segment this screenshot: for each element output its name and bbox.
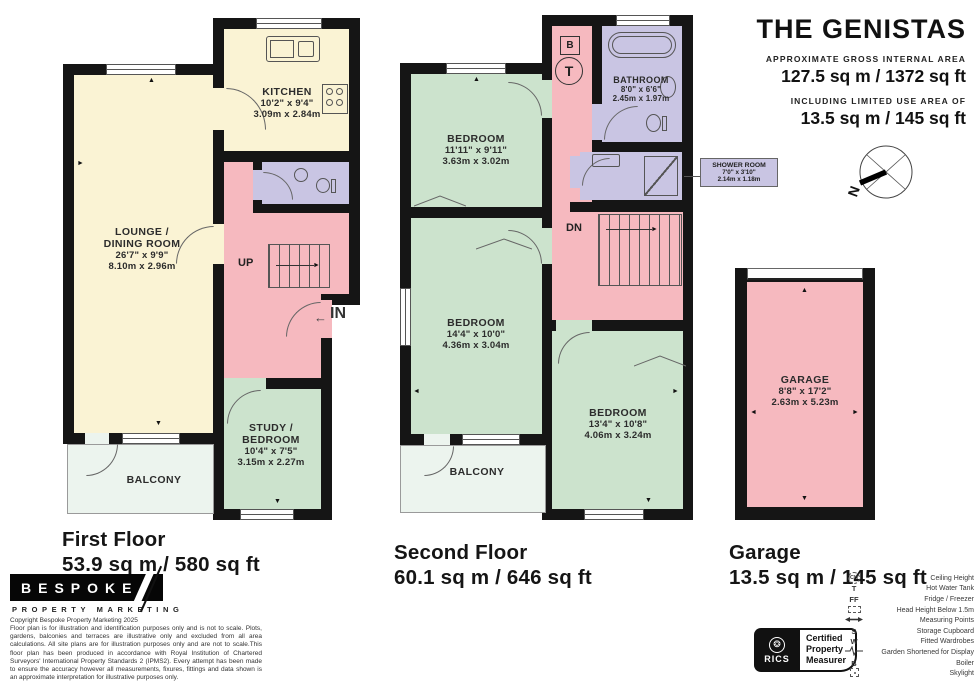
window xyxy=(616,15,670,26)
wardrobe-icon xyxy=(476,238,532,250)
rics-logo: ❂ RICS xyxy=(754,628,800,672)
measure-arrow-icon: ◄ xyxy=(750,409,757,416)
hob-ring xyxy=(326,99,333,106)
balcony-second xyxy=(400,445,546,513)
measure-arrow-icon: ► xyxy=(672,388,679,395)
stairs-down-label: DN xyxy=(566,222,582,234)
boiler-marker: B xyxy=(560,36,580,55)
door-opening xyxy=(556,320,592,331)
second-floor-title: Second Floor 60.1 sq m / 646 sq ft xyxy=(394,540,592,590)
measure-arrow-icon: ◄ xyxy=(413,388,420,395)
measure-arrow-icon: ► xyxy=(852,409,859,416)
window xyxy=(106,64,176,75)
measure-arrow-icon: ▼ xyxy=(155,420,162,427)
legend-row: S Storage Cupboard xyxy=(842,626,974,637)
fridge-freezer-icon: FF xyxy=(842,595,866,604)
room-label-balcony-second: BALCONY xyxy=(450,466,505,478)
door-opening xyxy=(424,434,450,445)
arrow-right-icon: ► xyxy=(313,262,320,269)
legend-row: Head Height Below 1.5m xyxy=(842,605,974,616)
garage-door xyxy=(747,268,863,280)
room-label-study: STUDY / BEDROOM 10'4" x 7'5" 3.15m x 2.2… xyxy=(237,422,304,468)
toilet-tank xyxy=(662,116,667,131)
window xyxy=(400,288,411,346)
measure-arrow-icon: ▼ xyxy=(801,495,808,502)
shower-tag-line xyxy=(684,176,700,177)
door-opening xyxy=(224,378,266,389)
door-opening xyxy=(542,228,552,264)
measure-arrow-icon: ▼ xyxy=(645,497,652,504)
head-height-icon xyxy=(842,606,866,615)
measure-arrow-icon: ▲ xyxy=(473,76,480,83)
sink-bowl xyxy=(270,40,294,58)
wardrobe-icon xyxy=(634,355,686,367)
disclaimer-text: Floor plan is for illustration and ident… xyxy=(10,625,262,682)
legend-row: CH Ceiling Height xyxy=(842,573,974,584)
basin-icon xyxy=(294,168,308,182)
page-title: THE GENISTAS xyxy=(756,14,966,45)
copyright-line: Copyright Bespoke Property Marketing 202… xyxy=(10,617,262,624)
legend-row: B Boiler xyxy=(842,658,974,669)
window xyxy=(584,509,644,520)
window xyxy=(462,434,520,445)
wardrobe-icon xyxy=(414,195,466,207)
rics-lion-icon: ❂ xyxy=(769,637,785,653)
room-corridor xyxy=(552,152,570,212)
stairs-arrow xyxy=(606,229,652,230)
toilet-icon xyxy=(646,114,661,132)
room-label-lounge: LOUNGE / DINING ROOM 26'7" x 9'9" 8.10m … xyxy=(104,226,181,272)
rics-brand: RICS xyxy=(764,654,790,664)
measure-arrow-icon: ► xyxy=(77,160,84,167)
legend: CH Ceiling Height T Hot Water Tank FF Fr… xyxy=(842,573,974,679)
fitted-wardrobes-icon: W xyxy=(842,637,866,646)
window xyxy=(122,433,180,444)
door-opening xyxy=(253,170,262,200)
door-opening xyxy=(213,224,224,264)
room-label-garage: GARAGE 8'8" x 17'2" 2.63m x 5.23m xyxy=(771,374,838,408)
sink-bowl xyxy=(298,41,314,57)
legend-row: T Hot Water Tank xyxy=(842,584,974,595)
measure-arrow-icon: ▲ xyxy=(148,77,155,84)
compass-north-label: N xyxy=(846,184,863,199)
bath-inner xyxy=(612,36,672,54)
stairs-down xyxy=(598,214,682,286)
storage-cupboard-icon: S xyxy=(842,627,866,636)
boiler-icon: B xyxy=(842,659,866,668)
entrance-arrow-icon: ← xyxy=(314,311,327,324)
door-opening xyxy=(213,88,224,130)
stairs-up xyxy=(268,244,330,288)
hob-ring xyxy=(326,88,333,95)
gross-area-label: APPROXIMATE GROSS INTERNAL AREA xyxy=(756,54,966,64)
room-label-bedroom2: BEDROOM 14'4" x 10'0" 4.36m x 3.04m xyxy=(442,317,509,351)
toilet-icon xyxy=(316,178,330,193)
toilet-tank xyxy=(331,179,336,193)
room-label-bedroom1: BEDROOM 11'11" x 9'11" 3.63m x 3.02m xyxy=(442,133,509,167)
room-label-bathroom: BATHROOM 8'0" x 6'6" 2.45m x 1.97m xyxy=(613,75,670,103)
arrow-right-icon: ► xyxy=(651,226,658,233)
floorplan-page: ► KITCHEN 10'2" x 9'4" 3.09m x 2.84m LOU… xyxy=(0,0,980,692)
legend-row: Garden Shortened for Display xyxy=(842,647,974,658)
sink-icon xyxy=(266,36,320,62)
hob-ring xyxy=(336,88,343,95)
door-opening xyxy=(592,104,602,140)
bespoke-logo: BESPOKE xyxy=(10,574,163,601)
room-label-bedroom3: BEDROOM 13'4" x 10'8" 4.06m x 3.24m xyxy=(584,407,651,441)
entrance-label: IN xyxy=(330,305,346,323)
title-block: THE GENISTAS APPROXIMATE GROSS INTERNAL … xyxy=(756,14,966,129)
stairs-up-label: UP xyxy=(238,257,253,269)
basin-icon xyxy=(592,154,620,167)
garden-shortened-icon xyxy=(842,646,866,658)
bespoke-logo-subtitle: PROPERTY MARKETING xyxy=(12,605,183,614)
stairs-arrow xyxy=(276,265,314,266)
hot-water-tank-icon: T xyxy=(842,584,866,593)
measuring-points-icon xyxy=(842,616,866,625)
copyright-block: Copyright Bespoke Property Marketing 202… xyxy=(10,617,262,682)
legend-row: Skylight xyxy=(842,668,974,679)
shower-icon xyxy=(644,156,678,196)
first-floor-title: First Floor 53.9 sq m / 580 sq ft xyxy=(62,527,260,577)
bath-icon xyxy=(608,32,676,58)
window xyxy=(240,509,294,520)
compass-icon: N xyxy=(846,138,924,210)
limited-area-label: INCLUDING LIMITED USE AREA OF xyxy=(756,96,966,106)
measure-arrow-icon: ▲ xyxy=(801,287,808,294)
hob-icon xyxy=(322,84,348,114)
door-opening xyxy=(85,433,109,444)
room-label-kitchen: KITCHEN 10'2" x 9'4" 3.09m x 2.84m xyxy=(253,86,320,120)
door-opening xyxy=(570,156,580,188)
legend-row: Measuring Points xyxy=(842,615,974,626)
gross-area-value: 127.5 sq m / 1372 sq ft xyxy=(756,66,966,87)
measure-arrow-icon: ▼ xyxy=(274,498,281,505)
shower-room-tag: SHOWER ROOM 7'0" x 3'10" 2.14m x 1.18m xyxy=(700,158,778,187)
window xyxy=(256,18,322,29)
skylight-icon xyxy=(842,668,866,679)
bespoke-logo-text: BESPOKE xyxy=(21,580,138,596)
tank-marker: T xyxy=(555,57,583,85)
legend-row: FF Fridge / Freezer xyxy=(842,594,974,605)
door-opening xyxy=(542,80,552,118)
window xyxy=(446,63,506,74)
hob-ring xyxy=(336,99,343,106)
ceiling-height-icon: CH xyxy=(842,572,866,584)
limited-area-value: 13.5 sq m / 145 sq ft xyxy=(756,108,966,129)
room-label-balcony-first: BALCONY xyxy=(127,474,182,486)
